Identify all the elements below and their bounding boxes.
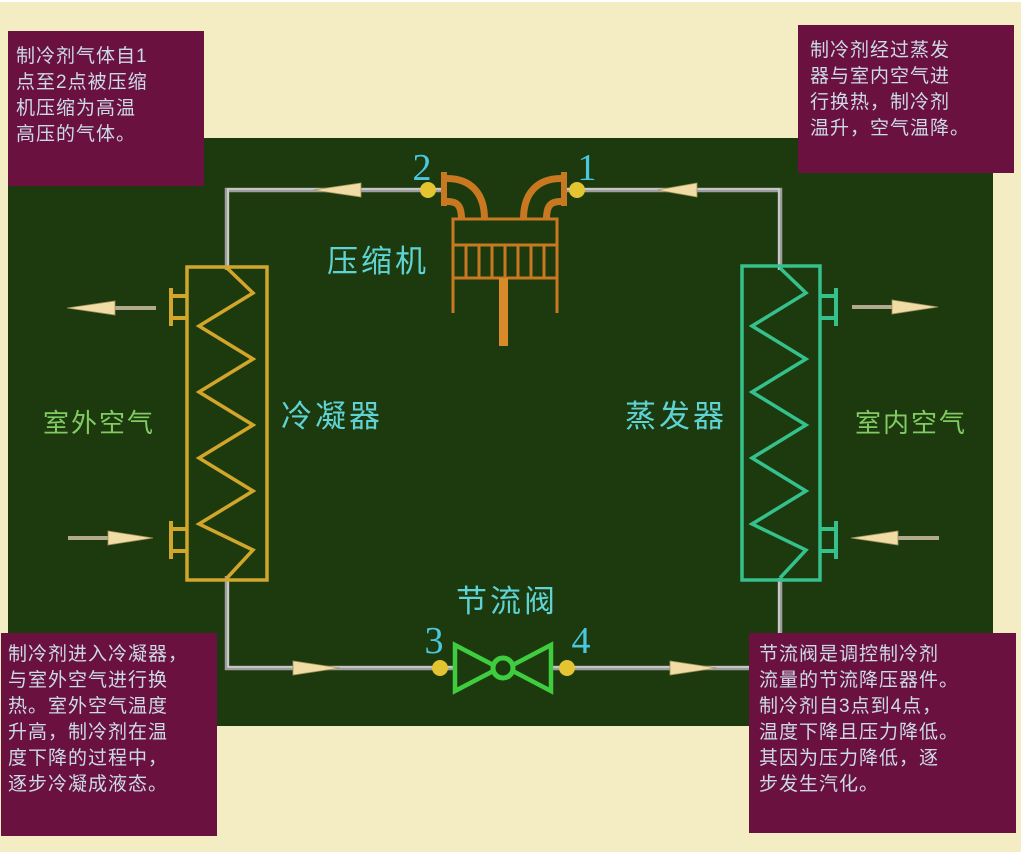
point-1-label: 1	[574, 146, 600, 190]
callout-text-line: 其因为压力降低，逐	[759, 746, 1016, 772]
outdoor-air-label: 室外空气	[43, 403, 155, 440]
callout-text-line: 制冷剂进入冷凝器，	[8, 642, 217, 668]
point-3-label: 3	[421, 619, 447, 663]
callout-text-line: 与室外空气进行换	[8, 668, 217, 694]
callout-text-line: 升高，制冷剂在温	[8, 720, 217, 746]
callout-text-line: 逐步冷凝成液态。	[8, 772, 217, 798]
indoor-air-label: 室内空气	[855, 403, 967, 440]
callout-text-line: 点至2点被压缩	[16, 70, 204, 96]
callout-throttling: 节流阀是调控制冷剂 流量的节流降压器件。 制冷剂自3点到4点， 温度下降且压力降…	[749, 633, 1016, 833]
callout-text-line: 步发生汽化。	[759, 772, 1016, 798]
callout-text-line: 机压缩为高温	[16, 96, 204, 122]
throttle-valve-label: 节流阀	[456, 576, 558, 621]
refrigeration-cycle-screen: 压缩机 冷凝器 蒸发器 节流阀 室外空气 室内空气 2 1 3 4 制冷剂气体自…	[0, 0, 1021, 864]
callout-text-line: 流量的节流降压器件。	[759, 668, 1016, 694]
callout-text-line: 节流阀是调控制冷剂	[759, 642, 1016, 668]
evaporator-label: 蒸发器	[625, 391, 727, 436]
callout-text-line: 行换热，制冷剂	[810, 90, 1014, 116]
callout-text-line: 度下降的过程中，	[8, 746, 217, 772]
callout-text-line: 制冷剂气体自1	[16, 44, 204, 70]
callout-text-line: 温度下降且压力降低。	[759, 720, 1016, 746]
callout-text-line: 制冷剂自3点到4点，	[759, 694, 1016, 720]
condenser-label: 冷凝器	[281, 391, 383, 436]
callout-text-line: 制冷剂经过蒸发	[810, 38, 1014, 64]
callout-text-line: 温升，空气温降。	[810, 116, 1014, 142]
callout-condensation: 制冷剂进入冷凝器， 与室外空气进行换 热。室外空气温度 升高，制冷剂在温 度下降…	[1, 633, 217, 836]
callout-compression: 制冷剂气体自1 点至2点被压缩 机压缩为高温 高压的气体。	[8, 31, 204, 186]
callout-text-line: 高压的气体。	[16, 122, 204, 148]
compressor-label: 压缩机	[327, 236, 429, 281]
point-4-label: 4	[568, 619, 594, 663]
callout-text-line: 器与室内空气进	[810, 64, 1014, 90]
callout-evaporation: 制冷剂经过蒸发 器与室内空气进 行换热，制冷剂 温升，空气温降。	[798, 25, 1014, 173]
callout-text-line: 热。室外空气温度	[8, 694, 217, 720]
point-2-label: 2	[409, 146, 435, 190]
